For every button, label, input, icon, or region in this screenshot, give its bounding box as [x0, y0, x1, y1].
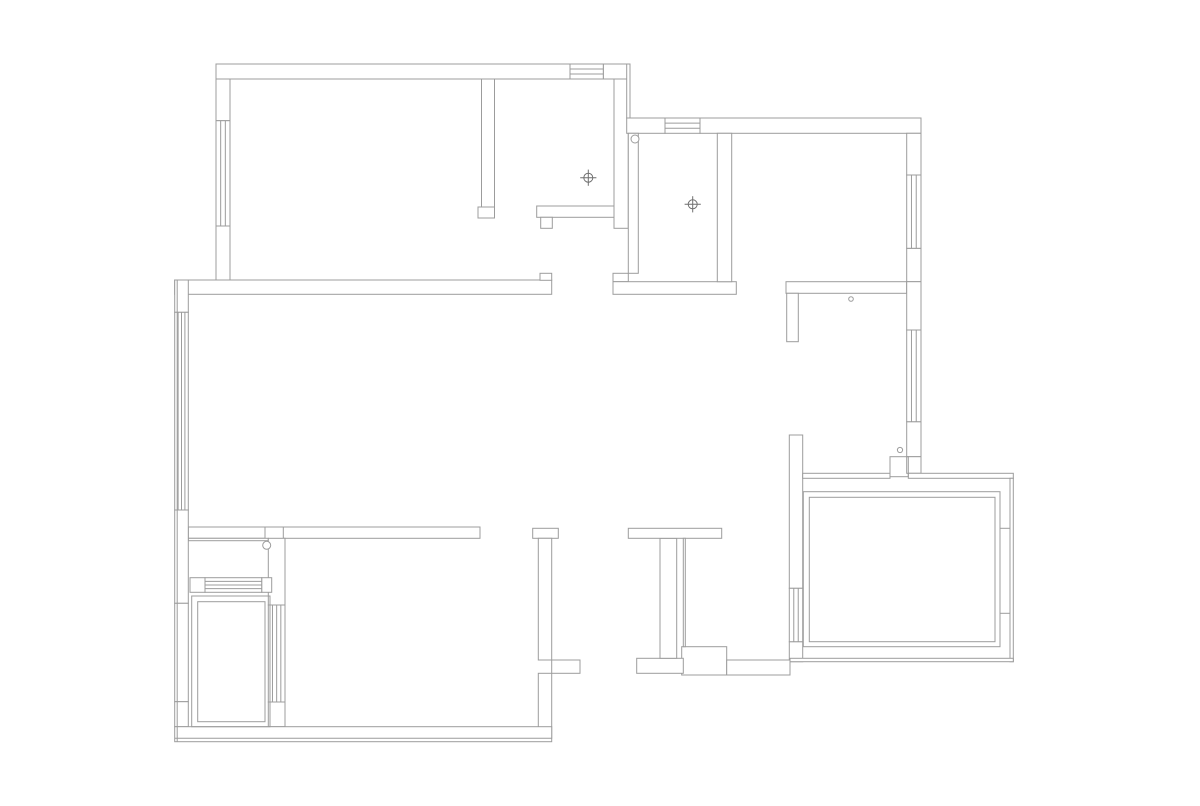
- wall-segment: [533, 528, 559, 538]
- wall-segment: [717, 133, 731, 281]
- wall-segment: [175, 727, 552, 742]
- wall-segment: [803, 473, 890, 478]
- wall-segment: [188, 527, 265, 538]
- window: [907, 330, 921, 422]
- wall-segment: [283, 527, 480, 538]
- wall-segment: [268, 538, 285, 605]
- wall-segment: [700, 118, 921, 133]
- wall-segment: [613, 273, 628, 281]
- wall-segment: [789, 435, 802, 588]
- wall-segment: [907, 282, 921, 330]
- door-pivot-circle: [849, 297, 854, 302]
- outline-rect: [198, 602, 265, 722]
- wall-segment: [613, 282, 736, 295]
- wall-segment: [627, 118, 665, 133]
- floor-plan-canvas: [0, 0, 1200, 806]
- wall-segment: [603, 64, 630, 79]
- wall-segment: [907, 248, 921, 281]
- wall-segment: [482, 79, 495, 207]
- wall-segment: [907, 457, 921, 474]
- wall-segment: [268, 702, 285, 727]
- wall-segment: [262, 578, 272, 593]
- wall-segment: [683, 538, 685, 646]
- wall-segment: [727, 660, 790, 675]
- wall-segment: [537, 206, 614, 217]
- wall-segment: [540, 273, 552, 280]
- wall-segment: [614, 79, 628, 228]
- wall-segment: [541, 217, 553, 228]
- wall-segment: [787, 293, 799, 341]
- window: [907, 175, 921, 248]
- wall-segment: [628, 133, 638, 273]
- floor-plan-page: [0, 0, 1200, 806]
- wall-segment: [188, 538, 268, 540]
- wall-segment: [790, 658, 1013, 661]
- wall-segment: [627, 64, 630, 118]
- wall-segment: [175, 280, 552, 294]
- door-pivot-circle: [263, 541, 271, 549]
- outline-rect: [809, 497, 995, 641]
- wall-segment: [908, 473, 1013, 478]
- wall-segment: [216, 64, 570, 79]
- outline-rect: [890, 457, 908, 477]
- wall-segment: [660, 538, 677, 658]
- wall-segment: [907, 133, 921, 175]
- wall-segment: [478, 207, 495, 218]
- door-pivot-circle: [897, 447, 902, 452]
- wall-segment: [190, 578, 205, 593]
- wall-segment: [682, 647, 727, 675]
- wall-segment: [216, 226, 230, 280]
- wall-segment: [786, 282, 907, 294]
- window: [570, 64, 603, 79]
- wall-segment: [628, 528, 721, 538]
- wall-segment: [538, 538, 551, 660]
- outline-rect: [192, 596, 270, 727]
- outline-rect: [803, 492, 1000, 647]
- window: [665, 118, 700, 133]
- wall-segment: [1010, 478, 1013, 661]
- door-pivot-circle: [631, 135, 639, 143]
- wall-segment: [637, 658, 684, 673]
- wall-segment: [216, 79, 230, 121]
- wall-segment: [907, 422, 921, 457]
- wall-segment: [552, 660, 580, 673]
- window: [789, 588, 802, 641]
- window: [216, 121, 230, 226]
